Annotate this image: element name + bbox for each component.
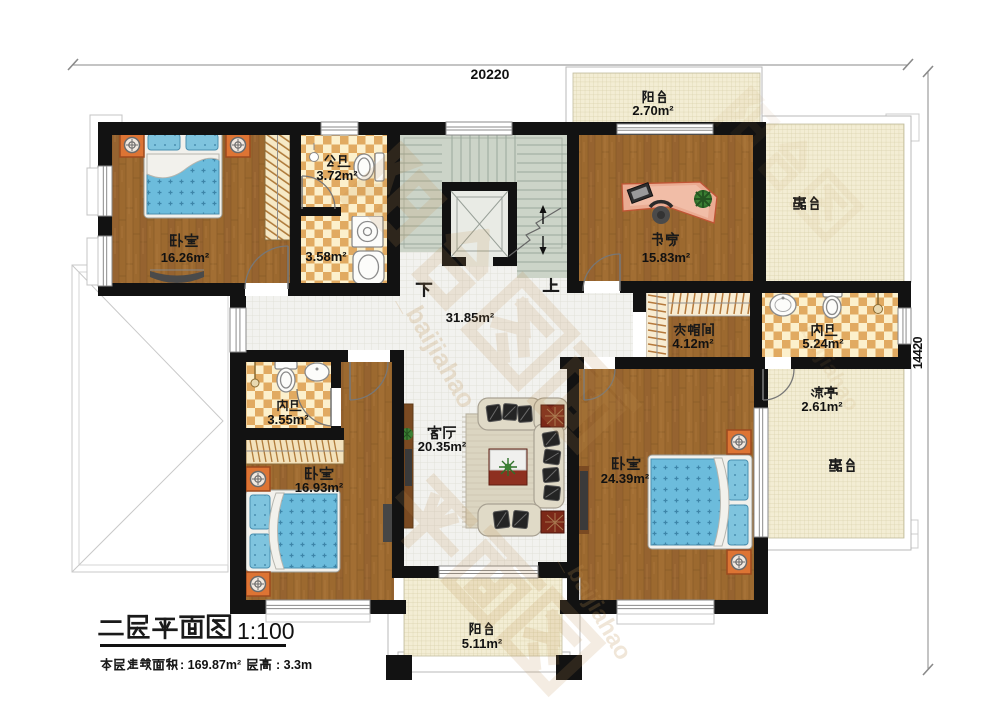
svg-text:20.35m²: 20.35m² (418, 439, 467, 454)
svg-text:: 3.3m: : 3.3m (276, 658, 312, 672)
svg-text:14420: 14420 (911, 336, 925, 369)
svg-text:3.55m²: 3.55m² (267, 412, 309, 427)
svg-text:4.12m²: 4.12m² (672, 336, 714, 351)
svg-text:1:100: 1:100 (237, 618, 295, 644)
svg-text:16.93m²: 16.93m² (295, 480, 344, 495)
svg-text:2.70m²: 2.70m² (632, 103, 674, 118)
svg-text:16.26m²: 16.26m² (161, 250, 210, 265)
svg-text:3.72m²: 3.72m² (316, 168, 358, 183)
svg-text:20220: 20220 (471, 66, 510, 82)
svg-text:15.83m²: 15.83m² (642, 250, 691, 265)
svg-text:: 169.87m²: : 169.87m² (180, 658, 241, 672)
svg-text:3.58m²: 3.58m² (305, 249, 347, 264)
svg-text:24.39m²: 24.39m² (601, 471, 650, 486)
